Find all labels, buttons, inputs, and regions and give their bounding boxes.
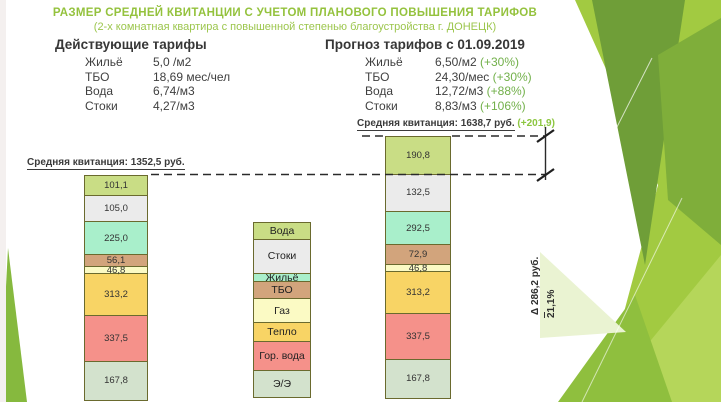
tariff-row: ТБО24,30/мес (+30%) — [365, 70, 532, 85]
bar-segment-Э/Э: 167,8 — [385, 359, 451, 399]
tariff-label: Стоки — [85, 99, 141, 114]
slide-subtitle: (2-х комнатная квартира с повышенной сте… — [30, 20, 560, 34]
bar-segment-Гор. вода: 337,5 — [385, 313, 451, 360]
delta-rub-annotation: Δ 286,2 руб. — [529, 312, 545, 318]
tariff-label: Жильё — [365, 55, 423, 70]
legend-label: Тепло — [267, 326, 296, 338]
legend-item-Газ: Газ — [253, 298, 311, 323]
avg-receipt-label-current: Средняя квитанция: 1352,5 руб. — [27, 157, 185, 168]
tariff-label: ТБО — [365, 70, 423, 85]
stacked-bar-current: 101,1105,0225,056,146,8313,2337,5167,8 — [84, 175, 148, 401]
tariff-label: Вода — [365, 84, 423, 99]
bar-segment-Жильё: 292,5 — [385, 211, 451, 246]
slide: РАЗМЕР СРЕДНЕЙ КВИТАНЦИИ С УЧЕТОМ ПЛАНОВ… — [0, 0, 721, 402]
bar-segment-value: 337,5 — [104, 333, 128, 344]
forecast-tariffs-rows: Жильё6,50/м2 (+30%)ТБО24,30/мес (+30%)Во… — [325, 55, 532, 113]
bar-segment-Тепло: 313,2 — [385, 271, 451, 314]
tariff-change: (+106%) — [480, 99, 526, 113]
bar-segment-value: 292,5 — [406, 223, 430, 234]
header: РАЗМЕР СРЕДНЕЙ КВИТАНЦИИ С УЧЕТОМ ПЛАНОВ… — [30, 6, 560, 34]
tariff-row: Вода12,72/м3 (+88%) — [365, 84, 532, 99]
left-edge-strip — [0, 0, 6, 402]
bar-segment-Э/Э: 167,8 — [84, 361, 148, 401]
tariff-value: 6,50/м2 (+30%) — [435, 55, 532, 70]
tariff-row: ТБО18,69 мес/чел — [85, 70, 230, 85]
legend-item-ТБО: ТБО — [253, 281, 311, 299]
tariff-change: (+88%) — [487, 84, 526, 98]
current-tariffs-block: Действующие тарифы Жильё5,0 /м2ТБО18,69 … — [55, 37, 230, 113]
current-tariffs-heading: Действующие тарифы — [55, 37, 230, 52]
bar-segment-value: 46,8 — [409, 263, 428, 274]
legend-label: Э/Э — [273, 378, 291, 390]
tariff-value: 12,72/м3 (+88%) — [435, 84, 532, 99]
stacked-bar-legend: ВодаСтокиЖильёТБОГазТеплоГор. водаЭ/Э — [253, 222, 311, 398]
tariff-label: Стоки — [365, 99, 423, 114]
current-tariffs-rows: Жильё5,0 /м2ТБО18,69 мес/челВода6,74/м3С… — [55, 55, 230, 113]
bar-segment-Вода: 101,1 — [84, 175, 148, 196]
bar-segment-value: 101,1 — [104, 180, 128, 191]
tariff-value: 18,69 мес/чел — [153, 70, 230, 85]
tariff-row: Жильё5,0 /м2 — [85, 55, 230, 70]
bar-segment-value: 225,0 — [104, 233, 128, 244]
tariff-value: 8,83/м3 (+106%) — [435, 99, 532, 114]
legend-item-Гор. вода: Гор. вода — [253, 341, 311, 371]
tariff-value: 4,27/м3 — [153, 99, 230, 114]
tariff-row: Стоки8,83/м3 (+106%) — [365, 99, 532, 114]
bar-segment-value: 72,9 — [409, 249, 428, 260]
tariff-value: 6,74/м3 — [153, 84, 230, 99]
legend-label: Гор. вода — [259, 350, 305, 362]
bar-segment-value: 313,2 — [104, 289, 128, 300]
tariff-row: Жильё6,50/м2 (+30%) — [365, 55, 532, 70]
legend-item-Тепло: Тепло — [253, 322, 311, 342]
bar-segment-value: 167,8 — [104, 375, 128, 386]
bar-segment-value: 132,5 — [406, 187, 430, 198]
legend-item-Э/Э: Э/Э — [253, 370, 311, 398]
stacked-bar-forecast: 190,8132,5292,572,946,8313,2337,5167,8 — [385, 136, 451, 399]
tariff-label: Жильё — [85, 55, 141, 70]
bar-segment-Стоки: 105,0 — [84, 195, 148, 222]
bar-segment-value: 105,0 — [104, 203, 128, 214]
avg-receipt-current-text: Средняя квитанция: 1352,5 руб. — [27, 157, 185, 170]
tariff-label: Вода — [85, 84, 141, 99]
tariff-row: Стоки4,27/м3 — [85, 99, 230, 114]
legend-item-Стоки: Стоки — [253, 239, 311, 274]
bar-segment-value: 337,5 — [406, 331, 430, 342]
avg-receipt-label-forecast: Средняя квитанция: 1638,7 руб. (+201,9) — [357, 118, 555, 129]
bar-segment-Стоки: 132,5 — [385, 174, 451, 212]
forecast-tariffs-heading: Прогноз тарифов с 01.09.2019 — [325, 37, 532, 52]
legend-label: Газ — [274, 305, 290, 317]
tariff-value: 5,0 /м2 — [153, 55, 230, 70]
tariff-value: 24,30/мес (+30%) — [435, 70, 532, 85]
bar-segment-Вода: 190,8 — [385, 136, 451, 175]
bar-segment-value: 167,8 — [406, 373, 430, 384]
legend-label: Вода — [270, 225, 295, 237]
avg-receipt-forecast-text: Средняя квитанция: 1638,7 руб. — [357, 118, 515, 131]
legend-label: ТБО — [271, 284, 292, 296]
bar-segment-value: 190,8 — [406, 150, 430, 161]
legend-label: Стоки — [268, 250, 297, 262]
bar-segment-Гор. вода: 337,5 — [84, 315, 148, 362]
slide-title: РАЗМЕР СРЕДНЕЙ КВИТАНЦИИ С УЧЕТОМ ПЛАНОВ… — [30, 6, 560, 20]
tariff-change: (+30%) — [480, 55, 519, 69]
avg-receipt-delta-value: (+201,9) — [517, 118, 555, 129]
legend-item-Вода: Вода — [253, 222, 311, 240]
forecast-tariffs-block: Прогноз тарифов с 01.09.2019 Жильё6,50/м… — [325, 37, 532, 113]
bar-segment-Тепло: 313,2 — [84, 273, 148, 316]
bar-segment-value: 313,2 — [406, 287, 430, 298]
bar-segment-value: 46,8 — [107, 265, 126, 276]
decorative-green-shapes — [540, 0, 721, 402]
tariff-row: Вода6,74/м3 — [85, 84, 230, 99]
legend-label: Жильё — [266, 272, 299, 284]
bar-segment-Жильё: 225,0 — [84, 221, 148, 256]
tariff-change: (+30%) — [493, 70, 532, 84]
tariff-label: ТБО — [85, 70, 141, 85]
